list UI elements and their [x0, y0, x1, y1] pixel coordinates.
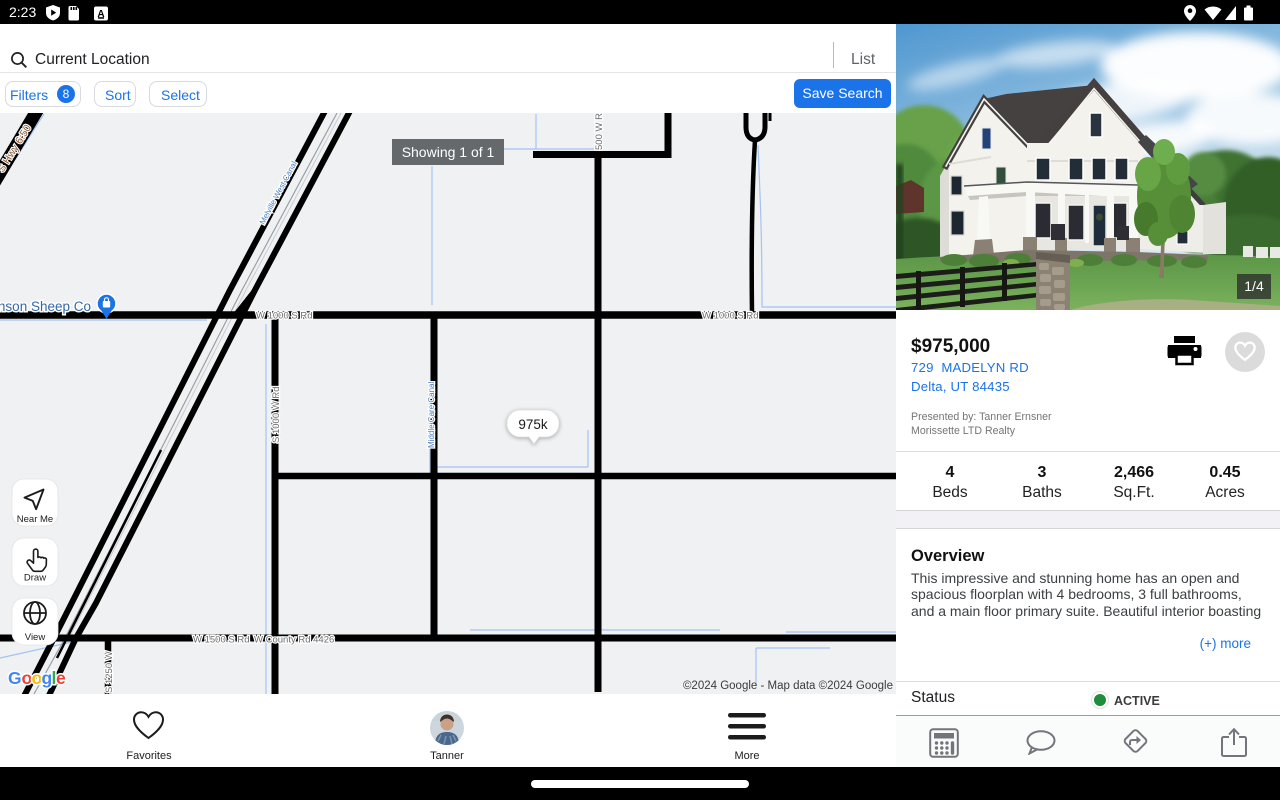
svg-text:nson Sheep Co: nson Sheep Co: [0, 299, 91, 314]
svg-text:W 1000 S Rd: W 1000 S Rd: [256, 311, 313, 322]
svg-text:e: e: [56, 668, 66, 688]
svg-text:W 1000 S Rd: W 1000 S Rd: [702, 311, 759, 322]
svg-text:S 1000 W Rd: S 1000 W Rd: [271, 387, 282, 444]
svg-text:©2024 Google - Map data ©2024: ©2024 Google - Map data ©2024 Google: [683, 680, 893, 692]
svg-text:S Hwy 6:50: S Hwy 6:50: [0, 123, 34, 175]
svg-text:Draw: Draw: [24, 573, 46, 584]
svg-text:Middle Care Canal: Middle Care Canal: [427, 382, 436, 448]
svg-text:W 1500 S Rd: W 1500 S Rd: [193, 635, 250, 646]
svg-text:Near Me: Near Me: [17, 514, 53, 525]
svg-text:Showing 1 of 1: Showing 1 of 1: [402, 144, 495, 160]
svg-text:G: G: [8, 668, 21, 688]
svg-text:S 1250 W: S 1250 W: [104, 651, 115, 693]
svg-text:o: o: [32, 668, 42, 688]
svg-text:W County Rd 4426: W County Rd 4426: [254, 635, 334, 646]
svg-text:g: g: [42, 668, 52, 688]
svg-text:500 W Rd: 500 W Rd: [594, 113, 605, 150]
svg-text:o: o: [22, 668, 32, 688]
svg-text:View: View: [25, 632, 46, 643]
svg-text:975k: 975k: [518, 417, 548, 432]
